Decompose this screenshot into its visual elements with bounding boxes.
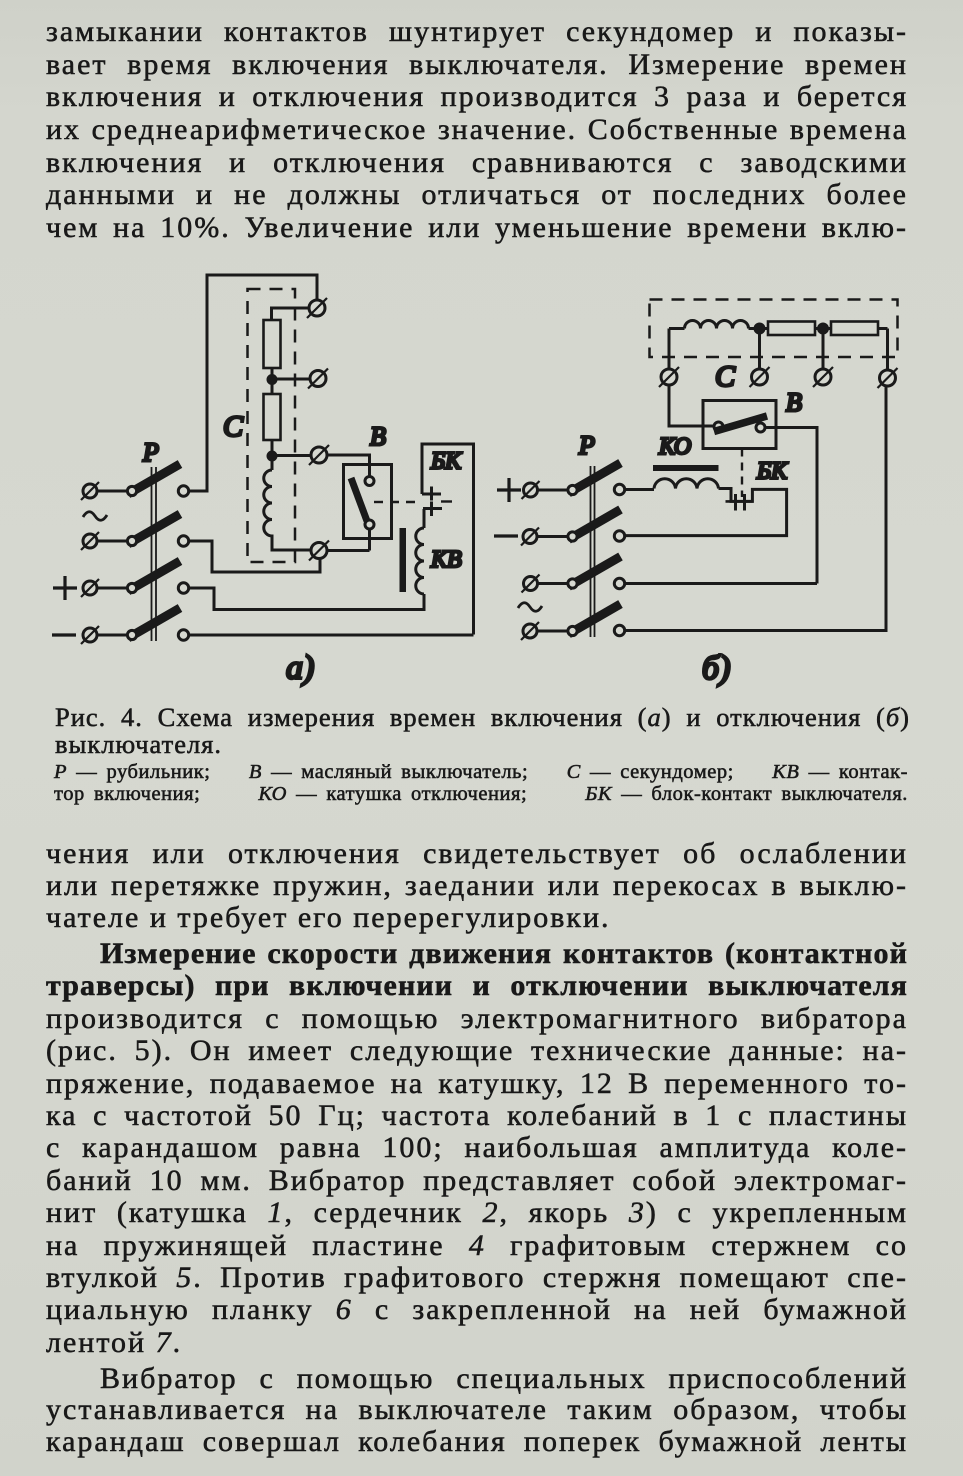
svg-text:В: В <box>370 422 386 451</box>
svg-text:Р: Р <box>578 431 595 460</box>
svg-text:БК: БК <box>430 449 463 475</box>
svg-text:С: С <box>223 410 244 443</box>
svg-text:КВ: КВ <box>430 547 462 573</box>
svg-text:БК: БК <box>756 459 789 485</box>
svg-text:а): а) <box>286 650 314 687</box>
svg-text:б): б) <box>702 650 730 687</box>
svg-text:Р: Р <box>142 438 159 467</box>
svg-text:КО: КО <box>658 434 691 460</box>
svg-text:В: В <box>786 388 802 417</box>
svg-text:С: С <box>715 360 736 393</box>
